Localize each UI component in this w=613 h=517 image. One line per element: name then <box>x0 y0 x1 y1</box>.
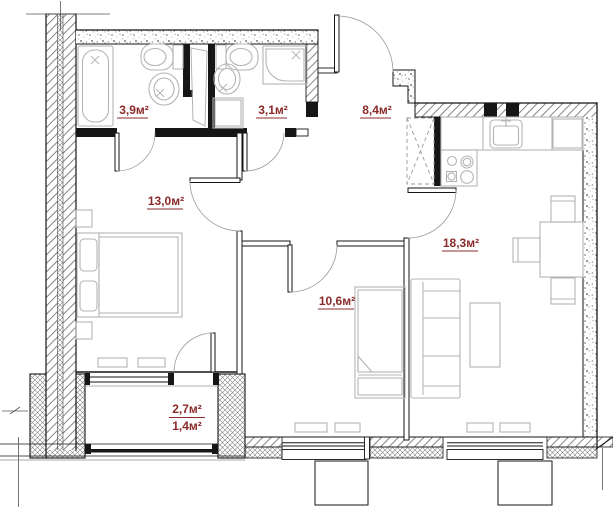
bath-wall-jamb <box>285 128 296 137</box>
label-kitchen-living: 18,3м² <box>443 236 479 250</box>
bath-wall-a <box>76 128 117 137</box>
kitchen-niche-wall <box>434 117 441 186</box>
label-room-second: 10,6м² <box>319 294 355 308</box>
right-exterior-wall <box>583 103 597 447</box>
label-bathroom-large: 3,9м² <box>119 103 149 117</box>
room-second-top-wall-right <box>337 241 405 246</box>
label-balcony-reduced: 1,4м² <box>172 419 202 433</box>
room-second-top-wall-left <box>242 241 290 246</box>
bath-wall-b <box>155 128 247 137</box>
top-exterior-wall <box>76 30 318 44</box>
partition-bedroom-bottom <box>237 231 242 374</box>
kitchen-top-wall <box>415 103 597 117</box>
label-balcony-total: 2,7м² <box>172 402 202 416</box>
wash-basin-icon-large-bath <box>149 73 179 105</box>
floor-plan: 3,9м² 3,1м² 8,4м² 13,0м² 18,3м² 10,6м² 2… <box>0 0 613 517</box>
bath-wall-thin-link <box>296 129 308 136</box>
left-exterior-wall <box>46 14 76 458</box>
floor-plan-drawing: 3,9м² 3,1м² 8,4м² 13,0м² 18,3м² 10,6м² 2… <box>0 0 613 517</box>
partition-bedroom-top <box>237 133 242 180</box>
label-hallway: 8,4м² <box>362 103 392 117</box>
entrance-side-wall <box>306 44 318 117</box>
label-bathroom-small: 3,1м² <box>258 103 288 117</box>
label-bedroom: 13,0м² <box>148 194 184 208</box>
balcony-pier-right <box>218 374 245 458</box>
